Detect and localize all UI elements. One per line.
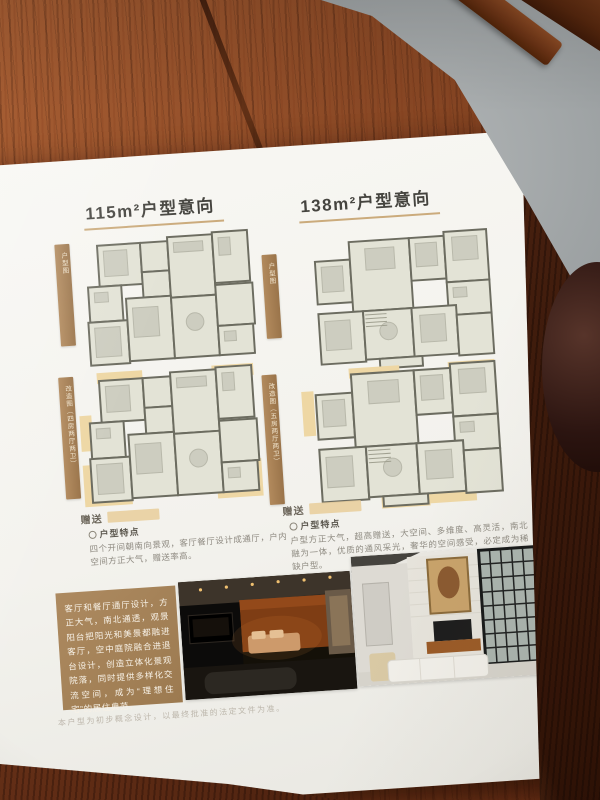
plan-tab-label: 改造图（四房两厅两卫） — [63, 385, 75, 468]
plan-tab-label: 户型图 — [266, 262, 274, 285]
plan-tab-label: 改造图（五房两厅两卫） — [266, 383, 278, 466]
title-115-unit: 115m²户型意向 — [82, 191, 223, 231]
interior-photo-dark-living-room — [178, 571, 357, 700]
photo-of-brochure-on-table: 115m²户型意向 138m²户型意向 户型图 改造图（四房两厅两卫） 户型图 … — [0, 0, 600, 800]
title-138-unit: 138m²户型意向 — [297, 183, 439, 223]
gift-highlight-swatch — [309, 500, 362, 514]
gift-label: 赠送 — [80, 510, 103, 526]
floor-plan-115-standard — [74, 228, 260, 372]
floor-plan-138-standard — [295, 227, 504, 376]
floor-plan-138-gift-areas — [296, 358, 510, 513]
interior-photo-bright-living-room — [351, 544, 553, 687]
plan-tab-115-standard: 户型图 — [54, 244, 76, 347]
gift-area-line-115: 赠送 — [80, 506, 160, 526]
plan-tab-138-standard: 户型图 — [261, 254, 282, 339]
description-text: 客厅和餐厅通厅设计，方正大气，南北通透，观景阳台把阳光和美景都融进客厅，空中庭院… — [64, 595, 175, 717]
plan-tab-138-gift: 改造图（五房两厅两卫） — [261, 374, 285, 505]
description-text-box: 客厅和餐厅通厅设计，方正大气，南北通透，观景阳台把阳光和美景都融进客厅，空中庭院… — [55, 586, 182, 711]
gift-area-line-138: 赠送 — [282, 498, 362, 518]
brochure-page: 115m²户型意向 138m²户型意向 户型图 改造图（四房两厅两卫） 户型图 … — [0, 129, 585, 800]
circle-bullet-icon — [88, 530, 97, 539]
plan-tab-label: 户型图 — [59, 252, 67, 275]
features-heading-138: 户型特点 — [289, 516, 341, 532]
circle-bullet-icon — [289, 522, 298, 531]
gift-label: 赠送 — [282, 502, 305, 518]
features-heading-115: 户型特点 — [88, 525, 140, 541]
gift-highlight-swatch — [107, 508, 160, 522]
floor-plan-115-gift-areas — [75, 363, 265, 509]
